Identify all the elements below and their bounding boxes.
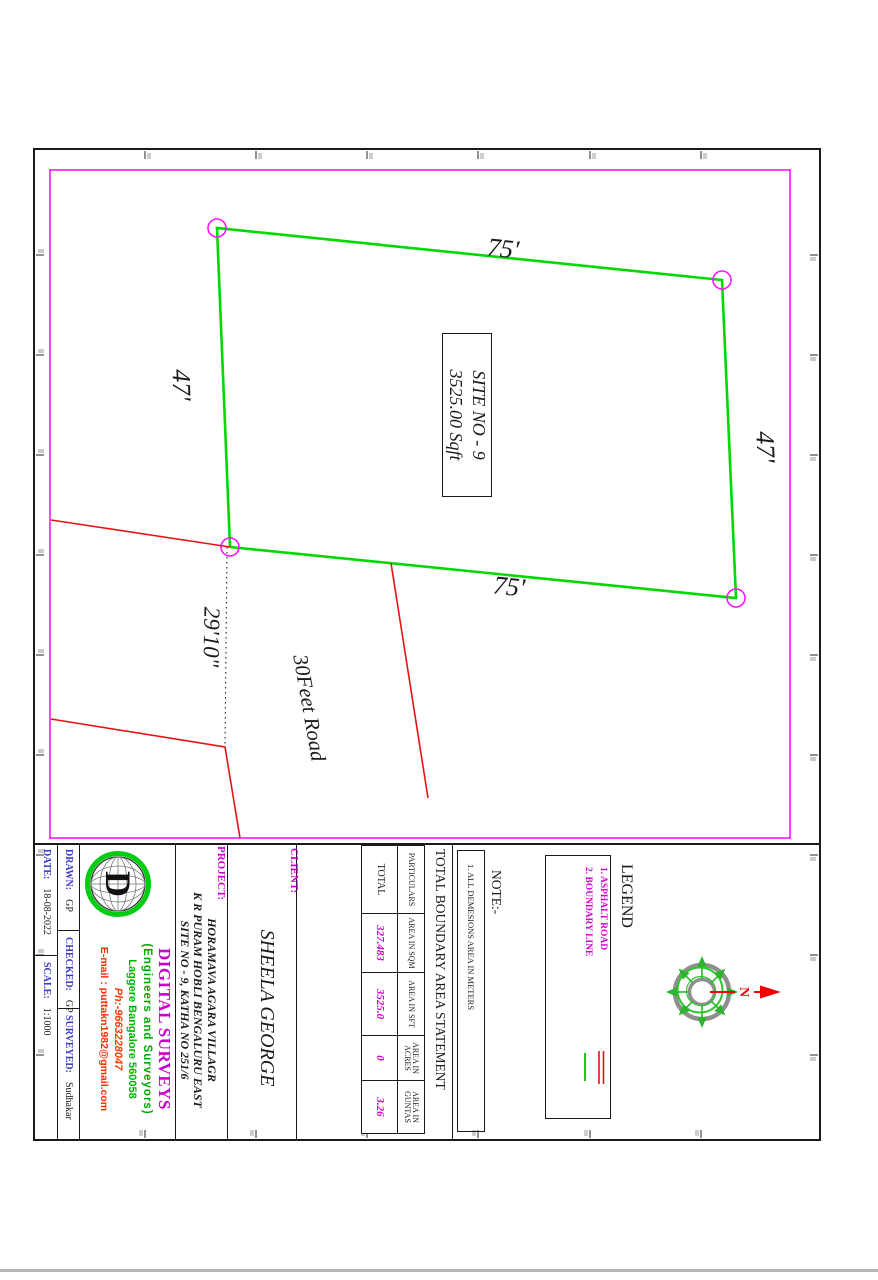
surveyed-cell: SURVEYED: Sudhakar [58, 1008, 80, 1141]
table-header-sqm: AREA IN SQM [397, 914, 424, 973]
dimension-right-75ft: 75' [492, 570, 527, 603]
client-name: SHEELA GEORGE [255, 888, 278, 1128]
note-title: NOTE:- [488, 870, 504, 914]
project-line-village: HORAMAVA AGARA VILLAGR [205, 866, 219, 1134]
dimension-left-75ft: 75' [486, 232, 521, 265]
meta-row-drawn: DRAWN: GP CHECKED: GP SURVEYED: Sudhakar [58, 843, 80, 1141]
road-edge-line [51, 520, 230, 547]
date-label: DATE: [41, 849, 52, 879]
scale-cell: SCALE: 1:1000 [35, 955, 58, 1141]
date-cell: DATE: 18-08-2022 [35, 843, 58, 955]
note-item: 1. ALL DEMESIONS AREA IN METERS [466, 864, 476, 1010]
project-description: HORAMAVA AGARA VILLAGR K R PURAM HOBLI B… [178, 866, 219, 1134]
divider [452, 843, 453, 1139]
table-cell-total: TOTAL [362, 846, 397, 914]
company-name: DIGITAL SURVEYS [154, 916, 174, 1142]
checked-label: CHECKED: [64, 937, 75, 991]
table-header-sft: AREA IN SFT [397, 973, 424, 1036]
drawn-cell: DRAWN: GP [58, 843, 80, 930]
survey-sheet: N D 75' 75' 47' 47' 29'10" 30Feet Road S… [33, 148, 821, 1141]
scale-value: 1:1000 [41, 1008, 52, 1036]
site-area: 3525.00 Sqft [444, 334, 467, 496]
drawing-area-border [50, 170, 790, 838]
road-width-dotted-line [225, 547, 227, 747]
dimension-top-47ft: 47' [749, 430, 781, 463]
road-width-dimension: 29'10" [197, 606, 224, 667]
checked-cell: CHECKED: GP [58, 930, 80, 1008]
drawn-label: DRAWN: [64, 849, 75, 890]
legend-item-boundary-line: 2. BOUNDARY LINE [583, 867, 593, 956]
compass-rose: N [668, 958, 781, 1026]
scanned-survey-page: { "drawing": { "site_box": {"line1": "SI… [0, 0, 878, 1280]
project-line-hobli: K R PURAM HOBLI BENGALURU EAST [191, 866, 205, 1134]
legend-title: LEGEND [617, 864, 635, 928]
table-cell-sft: 3525.0 [362, 973, 397, 1036]
company-tagline: (Engineers and Surveyors) [139, 916, 154, 1142]
table-header-acres: AREA IN ACRES [397, 1036, 424, 1081]
table-cell-guntas: 3.26 [362, 1081, 397, 1133]
site-label-box: SITE NO - 9 3525.00 Sqft [442, 333, 492, 497]
divider [175, 843, 176, 1139]
legend-item-asphalt-road: 1. ASPHALT ROAD [598, 867, 608, 950]
area-statement-table: PARTICULARS AREA IN SQM AREA IN SFT AREA… [361, 845, 425, 1134]
table-header-particulars: PARTICULARS [397, 846, 424, 914]
company-address: Laggere Bangalore 560058 [125, 916, 139, 1142]
table-cell-acres: 0 [362, 1036, 397, 1081]
north-label: N [736, 987, 751, 997]
road-edge-line [51, 719, 240, 838]
meta-row-date: DATE: 18-08-2022 SCALE: 1:1000 [35, 843, 58, 1141]
project-line-site: SITE NO - 9, KATHA NO 251/6 [178, 866, 192, 1134]
road-edge-line [391, 563, 428, 798]
company-phone: Ph:-9663228047 [111, 916, 125, 1142]
scale-label: SCALE: [41, 962, 52, 999]
surveyed-label: SURVEYED: [64, 1015, 75, 1073]
table-cell-sqm: 327.483 [362, 914, 397, 973]
area-table-title: TOTAL BOUNDARY AREA STATEMENT [432, 849, 448, 1090]
table-header-guntas: AREA IN GUNTAS [397, 1081, 424, 1133]
title-block-divider [35, 843, 819, 845]
drawn-value: GP [64, 899, 75, 912]
surveyed-value: Sudhakar [64, 1082, 75, 1120]
client-label: CLIENT: [288, 848, 300, 893]
logo-letter: D [98, 871, 138, 897]
company-logo: D [88, 854, 149, 915]
asphalt-road-lines [51, 520, 428, 838]
company-block: DIGITAL SURVEYS (Engineers and Surveyors… [96, 916, 174, 1142]
dimension-bottom-47ft: 47' [165, 369, 196, 402]
site-number: SITE NO - 9 [467, 334, 490, 496]
company-email: E-mail : puttakn1982@gmail.com [96, 916, 111, 1142]
scan-edge-line [0, 1269, 878, 1272]
date-value: 18-08-2022 [41, 888, 52, 935]
